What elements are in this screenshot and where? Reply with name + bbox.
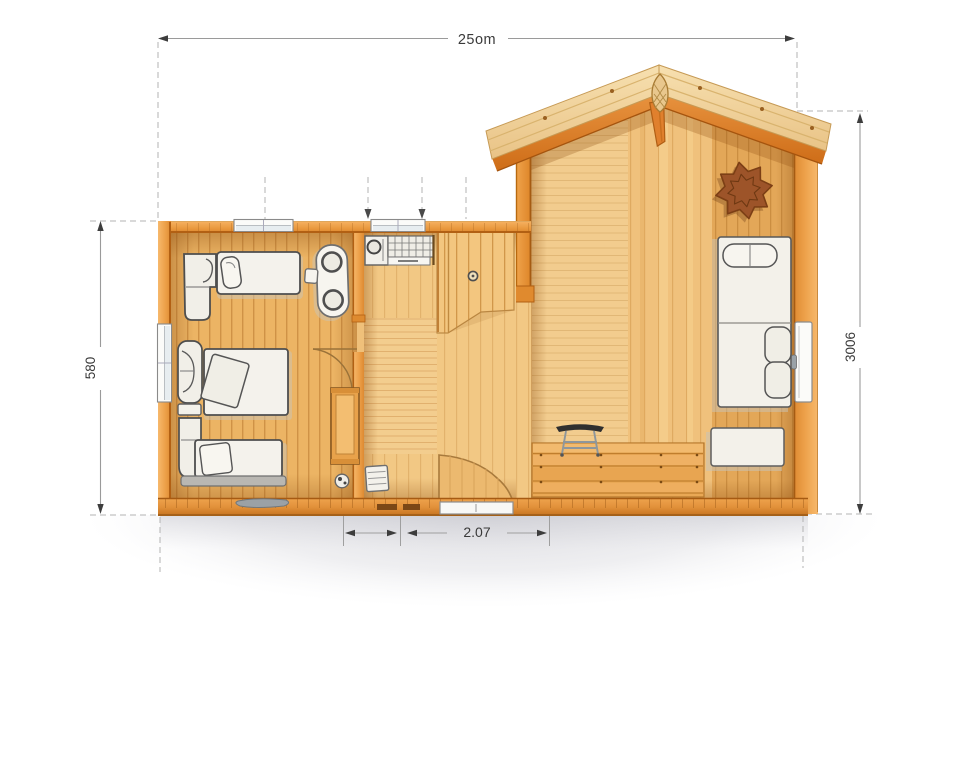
svg-text:2.07: 2.07 — [463, 524, 490, 540]
svg-text:3006: 3006 — [843, 332, 858, 362]
svg-text:25om: 25om — [458, 32, 496, 48]
svg-text:580: 580 — [83, 357, 98, 380]
